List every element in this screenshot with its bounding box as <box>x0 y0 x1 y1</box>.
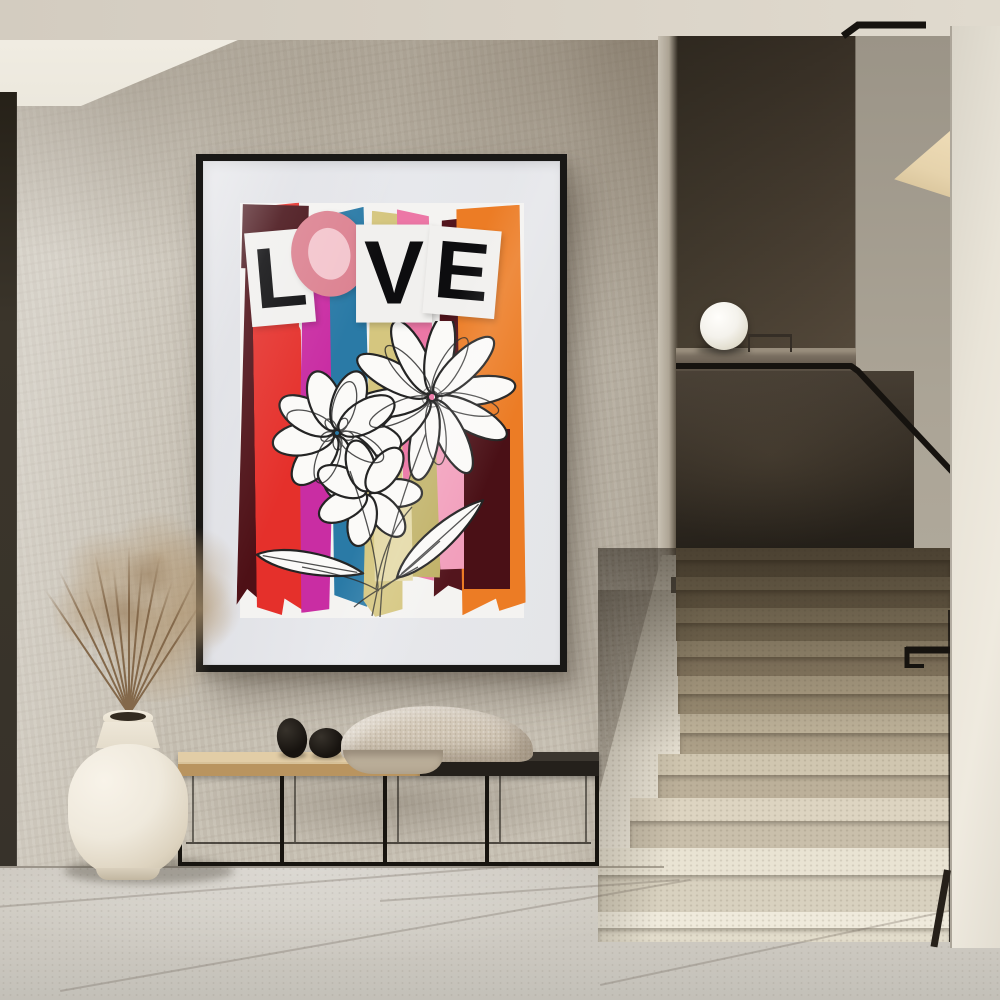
bench-leg <box>280 776 284 866</box>
flower-petals <box>255 321 517 586</box>
love-headline: L V E <box>244 212 518 333</box>
handrail-top-segment <box>843 25 926 36</box>
bench-back-leg <box>499 776 501 842</box>
bench-back-leg <box>192 776 194 842</box>
bench-back-leg <box>294 776 296 842</box>
blanket-drape <box>343 750 443 774</box>
poster-mat: L V E <box>203 161 560 665</box>
bench-leg <box>383 776 387 866</box>
stairwell <box>658 36 954 945</box>
foreground-column <box>950 26 1000 948</box>
bench-bottom-rail <box>178 862 599 866</box>
vase-foot <box>96 868 160 880</box>
handrail <box>598 22 954 946</box>
bench-back-leg <box>397 776 399 842</box>
framed-love-poster: L V E <box>196 154 567 672</box>
bench-leg <box>595 776 599 866</box>
dried-plant <box>48 512 218 722</box>
bench-back-leg <box>585 776 587 842</box>
handrail-diagonal <box>676 366 958 478</box>
poster-artwork: L V E <box>240 203 524 618</box>
ceramic-vase <box>66 706 190 880</box>
letter-v: V <box>356 225 432 323</box>
sketched-flowers-illustration <box>240 321 524 618</box>
vase-opening <box>110 712 146 721</box>
letter-e: E <box>422 225 501 319</box>
interior-hallway-photo: L V E <box>0 0 1000 1000</box>
bench-leg <box>485 776 489 866</box>
vase-body <box>68 744 188 876</box>
dark-door-edge <box>0 92 17 870</box>
bench-back-rail <box>186 842 591 844</box>
